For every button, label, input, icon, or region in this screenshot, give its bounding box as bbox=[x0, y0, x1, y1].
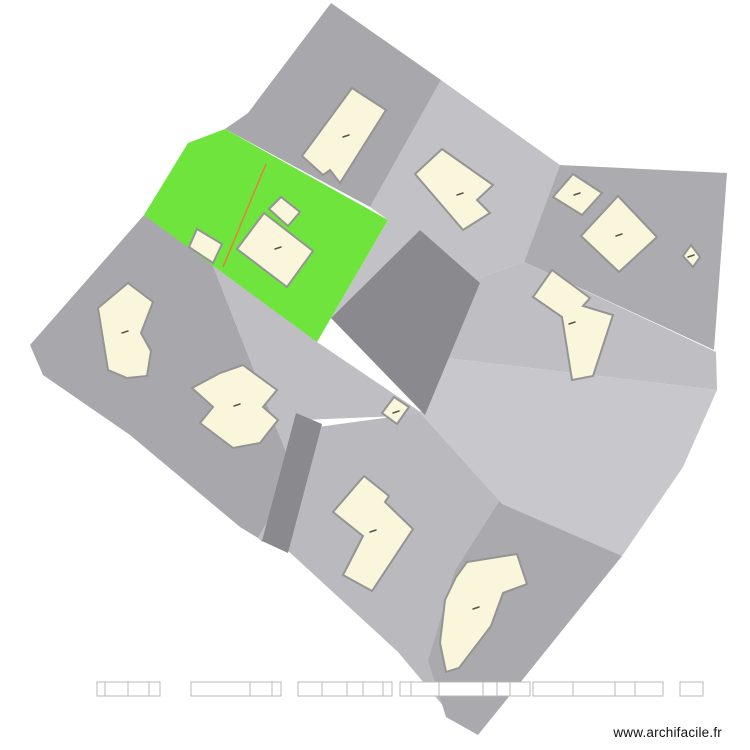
scale-bar-segment bbox=[573, 682, 615, 696]
scale-bar-segment bbox=[533, 682, 573, 696]
scale-bar-segment bbox=[105, 682, 128, 696]
scale-bar-segment bbox=[272, 682, 281, 696]
scale-bar-segment bbox=[680, 682, 703, 696]
scale-bar-segment bbox=[411, 682, 439, 696]
scale-bar-segment bbox=[400, 682, 411, 696]
watermark-text: www.archifacile.fr bbox=[613, 725, 722, 740]
scale-bar-segment bbox=[439, 682, 483, 696]
scale-bar-segment bbox=[497, 682, 510, 696]
scale-bar-segment bbox=[322, 682, 347, 696]
scale-bar-segment bbox=[149, 682, 160, 696]
scale-bar-segment bbox=[383, 682, 392, 696]
scale-bar-segment bbox=[347, 682, 363, 696]
scale-bar-segment bbox=[97, 682, 105, 696]
scale-bar-segment bbox=[250, 682, 272, 696]
scale-bar-segment bbox=[191, 682, 250, 696]
scale-bar-segment bbox=[128, 682, 149, 696]
scale-bar-segment bbox=[635, 682, 663, 696]
scale-bar-segment bbox=[510, 682, 530, 696]
scale-bar-segment bbox=[363, 682, 383, 696]
scale-bar-segment bbox=[298, 682, 322, 696]
site-plan-stage: www.archifacile.fr bbox=[0, 0, 750, 750]
scale-bar-segment bbox=[483, 682, 497, 696]
plan-canvas[interactable] bbox=[0, 0, 750, 750]
scale-bar-segment bbox=[615, 682, 635, 696]
